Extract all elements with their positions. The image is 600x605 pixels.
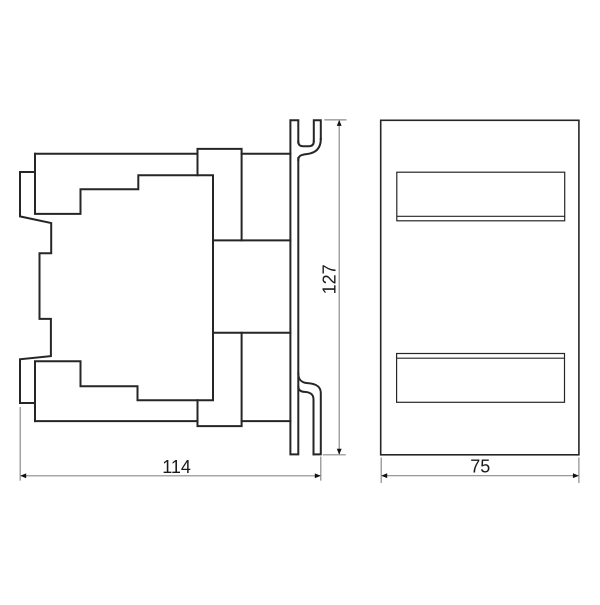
- svg-text:114: 114: [162, 457, 191, 477]
- svg-text:127: 127: [319, 264, 339, 294]
- svg-text:75: 75: [470, 457, 490, 477]
